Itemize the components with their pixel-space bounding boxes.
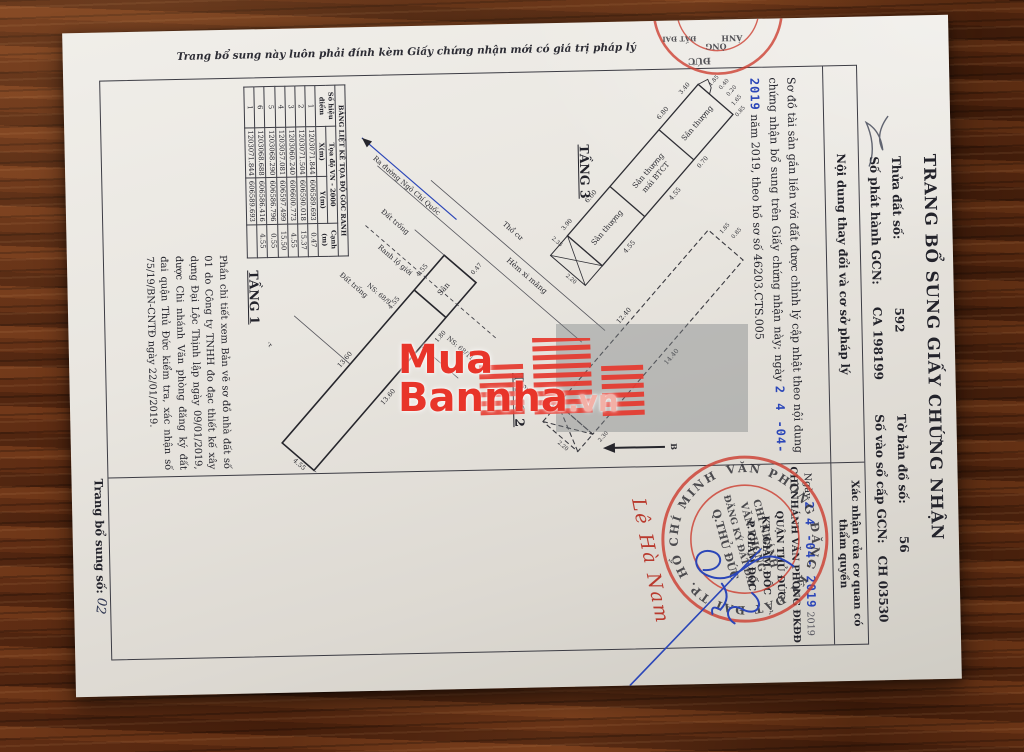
page-note-label: Trang bổ sung số: <box>91 479 107 594</box>
dim-label: 0.70 <box>696 155 710 170</box>
tang3-label: TẦNG 3 <box>577 144 593 198</box>
dim-label: 13.60 <box>336 350 354 369</box>
field-thua-dat: Thửa đất số: 592 <box>889 156 907 333</box>
dim-label: 4.55 <box>291 457 307 473</box>
dim-label: 0.47 <box>470 262 484 277</box>
cell: 1203071.504 <box>296 127 307 178</box>
cell: 4.55 <box>257 224 268 258</box>
cell: 1203060.240 <box>285 127 296 178</box>
plan-label-dat-trong: Đất trống <box>379 207 411 237</box>
plan-label-tho-cu: Thổ cư <box>263 326 274 349</box>
coord-col-x: X(m) <box>316 126 327 177</box>
page-title: TRANG BỔ SUNG GIẤY CHỨNG NHẬN <box>917 15 950 679</box>
page-number-note: Trang bổ sung số: 02 <box>90 479 108 615</box>
so-vao-so-value: CH 03530 <box>875 555 890 622</box>
cell: 0.47 <box>308 223 319 257</box>
cell: 5 <box>264 86 275 127</box>
field-so-vao-so: Số vào sổ cấp GCN: CH 03530 <box>872 414 890 622</box>
watermark-text: Mua Bannha.vn <box>398 341 618 417</box>
cell: 606590.018 <box>297 177 308 223</box>
cell: 15.37 <box>298 223 309 257</box>
watermark-line2-wrap: Bannha.vn <box>398 379 618 417</box>
edge-stamp-text: ĐẤT ĐAI <box>662 34 696 45</box>
watermark-line2: Bannha <box>398 375 568 421</box>
tang1-label: TẦNG 1 <box>246 270 262 324</box>
coord-col-edge: Cạnh (m) <box>318 223 338 257</box>
dim-label: 0.85 <box>731 227 744 241</box>
dim-label: 1.85 <box>719 222 732 236</box>
cell: 606586.416 <box>256 178 267 224</box>
edge-stamp-text: ÁNH <box>721 33 744 43</box>
cell: 606589.693 <box>307 177 318 223</box>
cell: 1203071.844 <box>306 127 317 178</box>
thua-dat-label: Thửa đất số: <box>889 156 905 240</box>
cell: 1203068.290 <box>265 127 276 178</box>
cell: 606589.693 <box>246 178 257 224</box>
coordinate-table: BẢNG LIỆT KÊ TỌA ĐỘ GÓC RANH Số hiệu điể… <box>243 84 348 258</box>
cell: 4 <box>274 86 285 127</box>
cell: 606597.499 <box>276 178 287 224</box>
watermark-line1: Mua <box>398 341 618 379</box>
dim-label: 0.85 <box>734 105 747 119</box>
field-so-phat-hanh: Số phát hành GCN: CA 198199 <box>867 156 886 380</box>
edge-stamp-text: ĐỨC <box>688 55 711 67</box>
cell: 6 <box>254 87 265 128</box>
coord-col-y: Y(m) <box>317 177 328 223</box>
detail-note: Phần chi tiết xem Bản vẽ sơ đồ nhà đất s… <box>141 255 234 471</box>
cell: 3 <box>285 86 296 127</box>
photo-of-land-certificate: { "watermark":{"line1":"Mua","line2":"Ba… <box>0 0 1024 752</box>
cell: 606586.796 <box>266 178 277 224</box>
plan-label-san: Sân <box>435 280 451 297</box>
cell: 1 <box>244 87 255 128</box>
plan-label-tho-cu: Thổ cư <box>501 219 526 242</box>
cell: 15.50 <box>277 224 288 258</box>
cell: 0.55 <box>267 224 278 258</box>
plan-label-dat-trong: Đất trống <box>338 270 370 300</box>
field-to-ban-do: Tờ bản đồ số: 56 <box>894 414 911 553</box>
cell: 1203057.081 <box>275 127 286 178</box>
dim-label: 12.40 <box>615 306 633 325</box>
dim-label: 2.20 <box>564 273 578 286</box>
to-ban-do-value: 56 <box>897 536 911 553</box>
cell <box>247 224 258 258</box>
plan-label-ranh: Ranh lộ giới <box>376 243 414 277</box>
thua-dat-value: 592 <box>892 307 907 332</box>
dim-label: 2.35 <box>550 236 564 249</box>
side-margin-note: Trang bổ sung này luôn phải đính kèm Giấ… <box>177 43 577 63</box>
to-ban-do-label: Tờ bản đồ số: <box>894 414 910 504</box>
edge-stamp-text: ÒNG <box>705 41 726 51</box>
plan-label: Sân thượng <box>589 208 624 247</box>
coord-col-point: Số hiệu điểm <box>315 85 336 126</box>
plan-label: Sân thượng <box>679 103 714 142</box>
cell: 606600.773 <box>287 177 298 223</box>
dim-label: 13.60 <box>379 387 397 406</box>
so-phat-hanh-label: Số phát hành GCN: <box>867 156 884 285</box>
so-vao-so-label: Số vào sổ cấp GCN: <box>872 414 889 543</box>
page-note-handwritten: 02 <box>92 597 109 615</box>
cell: 2 <box>295 86 306 127</box>
cell: 1203068.688 <box>255 128 266 179</box>
cell: 1 <box>305 86 316 127</box>
watermark-suffix: .vn <box>568 384 619 418</box>
so-phat-hanh-value: CA 198199 <box>870 307 886 380</box>
dim-label: 4.55 <box>414 262 430 278</box>
cell: 4.55 <box>287 224 298 258</box>
plan-label-ra-duong: Ra đường Ngô Chí Quốc <box>371 154 442 217</box>
cell: 1203071.844 <box>245 128 256 179</box>
confirm-cell: Ngày 2 4 -04- 2019 2019 CHI NHÁNH VĂN PH… <box>108 463 835 659</box>
plan-label-hem: Hẻm xi măng <box>505 256 549 296</box>
plan-label-ns1: NS: 68/9 <box>365 282 392 307</box>
